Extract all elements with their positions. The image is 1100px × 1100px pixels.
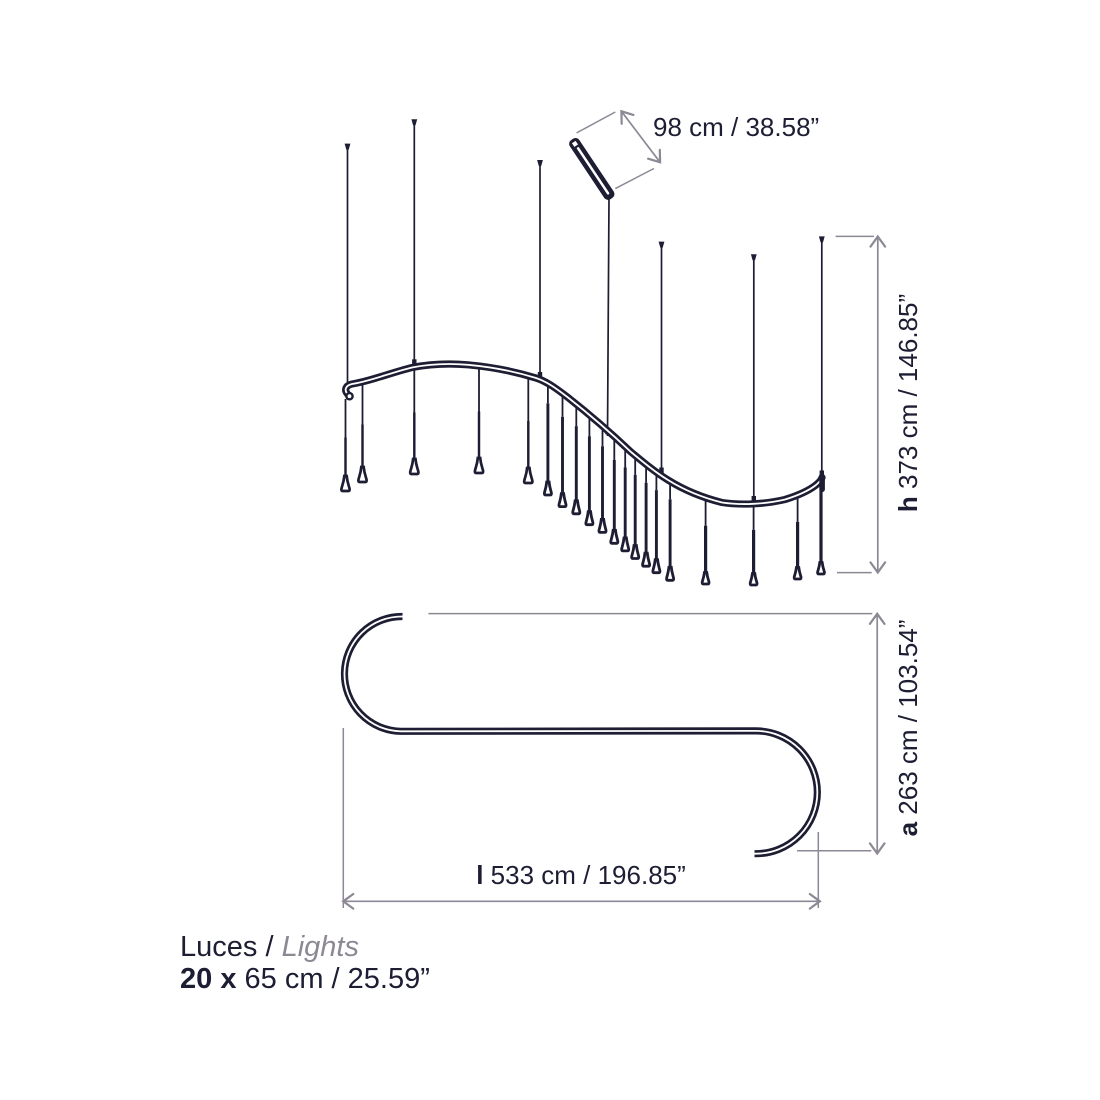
svg-text:h 373 cm / 146.85”: h 373 cm / 146.85” [893, 294, 923, 512]
svg-text:98 cm / 38.58”: 98 cm / 38.58” [653, 112, 819, 142]
svg-text:20 x 65 cm / 25.59”: 20 x 65 cm / 25.59” [180, 963, 430, 995]
svg-text:Luces / Lights: Luces / Lights [180, 931, 359, 963]
svg-text:l 533 cm / 196.85”: l 533 cm / 196.85” [476, 860, 686, 890]
svg-text:a 263 cm / 103.54”: a 263 cm / 103.54” [893, 620, 923, 837]
